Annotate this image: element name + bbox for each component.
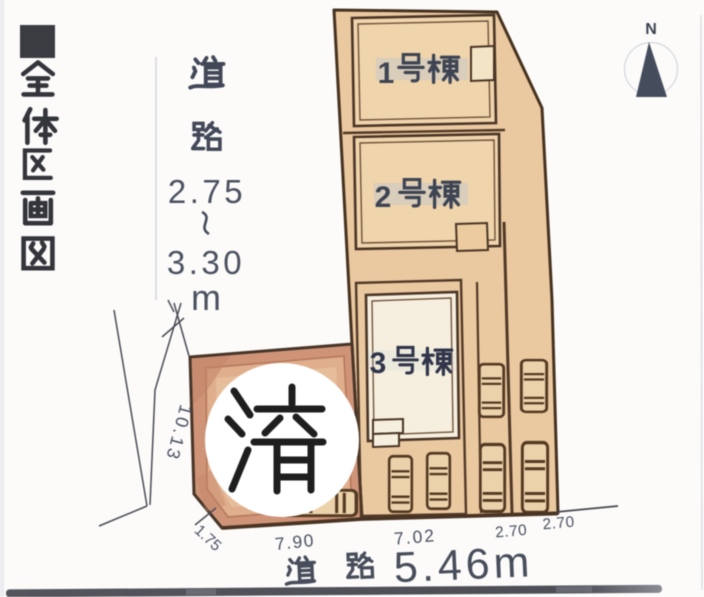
svg-text:2.75: 2.75	[168, 173, 246, 210]
svg-text:5.46m: 5.46m	[393, 538, 534, 592]
svg-text:2: 2	[375, 181, 392, 214]
svg-text:3.30: 3.30	[167, 244, 245, 281]
svg-text:m: m	[191, 277, 221, 318]
svg-text:7.90: 7.90	[274, 530, 316, 554]
svg-text:3: 3	[370, 347, 387, 380]
svg-text:1: 1	[378, 57, 395, 90]
svg-text:N: N	[645, 21, 657, 38]
svg-text:2.70: 2.70	[542, 514, 576, 534]
